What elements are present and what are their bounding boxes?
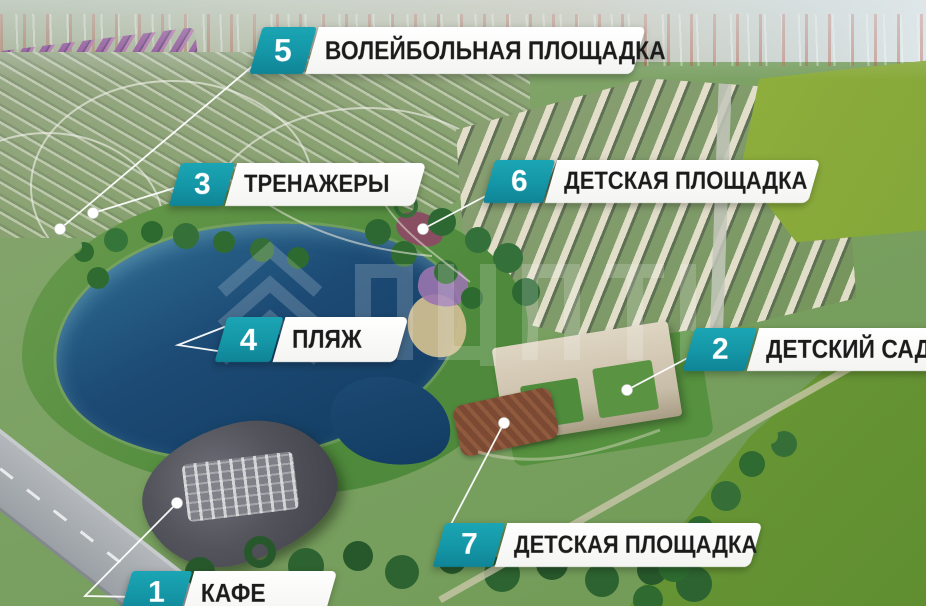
map-label-exercise-machines[interactable]: 3 ТРЕНАЖЕРЫ [169,163,426,206]
cafe-roof-terrace [181,451,299,522]
label-text-plate: ТРЕНАЖЕРЫ [225,163,426,206]
masterplan-aerial-view: 5 ВОЛЕЙБОЛЬНАЯ ПЛОЩАДКА 3 ТРЕНАЖЕРЫ 6 ДЕ… [0,0,926,606]
label-text-plate: КАФЕ [182,571,338,606]
label-number-badge: 1 [120,571,193,606]
label-number-badge: 2 [683,328,757,371]
label-text-plate: ДЕТСКАЯ ПЛОЩАДКА [545,160,820,203]
map-label-cafe[interactable]: 1 КАФЕ [120,571,338,606]
label-number-badge: 6 [483,160,555,203]
label-text-plate: ДЕТСКИЙ САД [747,328,926,371]
label-text-plate: ДЕТСКАЯ ПЛОЩАДКА [495,523,763,567]
map-label-playground-6[interactable]: 6 ДЕТСКАЯ ПЛОЩАДКА [483,160,820,203]
kindergarten-courtyard [592,360,659,419]
map-label-volleyball-court[interactable]: 5 ВОЛЕЙБОЛЬНАЯ ПЛОЩАДКА [249,27,645,74]
tree-cluster-bottom [252,544,268,560]
map-label-playground-7[interactable]: 7 ДЕТСКАЯ ПЛОЩАДКА [433,523,763,567]
label-text-plate: ПЛЯЖ [273,317,409,362]
tree-cluster-field-edge [762,428,778,444]
label-number-badge: 4 [215,317,284,362]
tree-cluster-lakeside [66,238,82,254]
label-text-plate: ВОЛЕЙБОЛЬНАЯ ПЛОЩАДКА [305,27,645,74]
map-label-kindergarten[interactable]: 2 ДЕТСКИЙ САД [683,328,926,371]
label-number-badge: 7 [433,523,506,567]
map-label-beach[interactable]: 4 ПЛЯЖ [215,317,409,362]
label-number-badge: 3 [169,163,235,206]
